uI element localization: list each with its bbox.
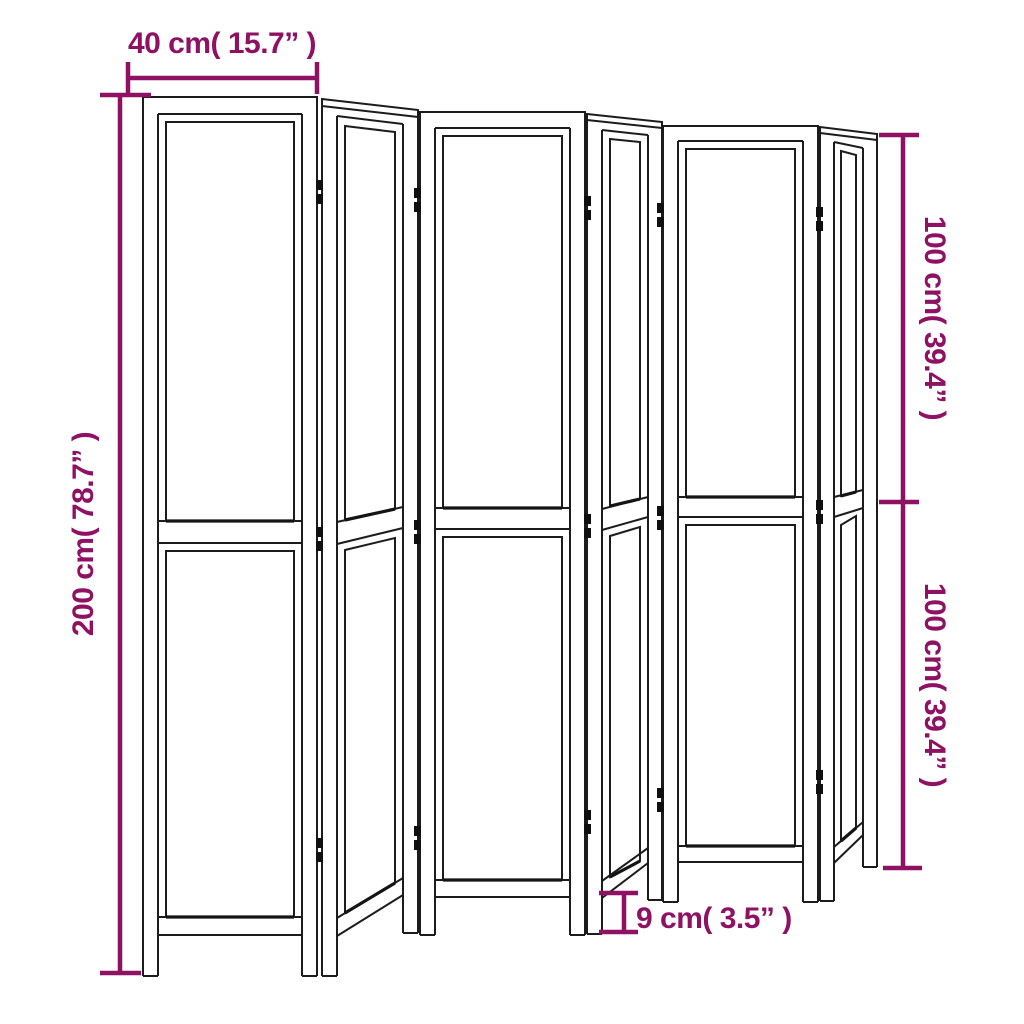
hinge-icon	[816, 500, 823, 510]
panel-4	[587, 114, 662, 934]
hinge-icon	[316, 852, 323, 862]
dimension-label-right-upper-height: 100 cm( 39.4” )	[917, 216, 951, 420]
hinge-icon	[316, 527, 323, 537]
panel-5	[663, 126, 818, 902]
hinge-icon	[657, 506, 664, 516]
hinge-icon	[414, 520, 421, 530]
divider-line-art	[0, 0, 1024, 1024]
panel-6	[820, 127, 877, 901]
dimension-label-leg-height: 9 cm( 3.5” )	[636, 902, 792, 936]
hinge-icon	[657, 788, 664, 798]
panel-3	[420, 112, 585, 935]
hinge-icon	[657, 802, 664, 812]
hinge-icon	[316, 194, 323, 204]
hinge-icon	[584, 210, 591, 220]
hinge-icon	[816, 207, 823, 217]
hinge-icon	[414, 534, 421, 544]
hinge-icon	[414, 202, 421, 212]
hinge-icon	[316, 180, 323, 190]
dimension-line-right-heights	[879, 135, 922, 868]
hinge-icon	[584, 196, 591, 206]
panel-2	[322, 99, 418, 976]
hinge-icon	[316, 541, 323, 551]
room-divider-dimension-diagram: 40 cm( 15.7” ) 200 cm( 78.7” ) 100 cm( 3…	[0, 0, 1024, 1024]
hinge-icon	[816, 514, 823, 524]
hinge-icon	[584, 514, 591, 524]
hinge-icon	[414, 826, 421, 836]
hinge-icon	[816, 784, 823, 794]
hinge-icon	[816, 770, 823, 780]
hinge-icon	[584, 810, 591, 820]
hinge-icon	[316, 838, 323, 848]
hinge-icon	[657, 217, 664, 227]
hinge-icon	[414, 840, 421, 850]
dimension-line-top-width	[128, 62, 317, 94]
dimension-label-top-width: 40 cm( 15.7” )	[128, 27, 316, 61]
dimension-label-left-height: 200 cm( 78.7” )	[67, 432, 101, 636]
hinge-icon	[414, 188, 421, 198]
hinge-icon	[657, 203, 664, 213]
panel-1	[143, 97, 317, 976]
hinge-icon	[657, 520, 664, 530]
hinge-icon	[584, 824, 591, 834]
dimension-line-leg-height	[599, 893, 638, 932]
dimension-label-right-lower-height: 100 cm( 39.4” )	[917, 583, 951, 787]
hinge-icon	[584, 528, 591, 538]
hinge-icon	[816, 221, 823, 231]
